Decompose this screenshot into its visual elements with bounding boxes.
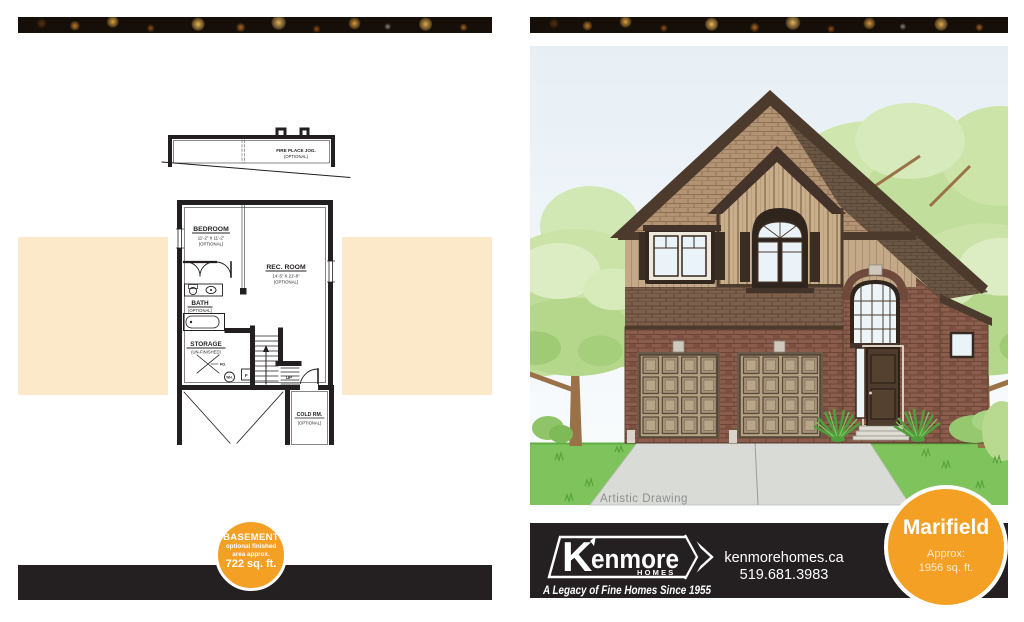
basement-badge-value: 722 sq. ft. xyxy=(218,558,284,571)
bedroom-label: BEDROOM xyxy=(193,226,229,233)
cold-room-label: COLD RM. xyxy=(297,412,323,418)
bath-label: BATH xyxy=(191,300,209,307)
storage-sub: (UN-FINISHED) xyxy=(191,350,221,355)
peach-panel-right xyxy=(342,237,492,395)
storage-label: STORAGE xyxy=(190,341,222,348)
window-right xyxy=(327,261,335,282)
furnace-label: F xyxy=(245,373,248,378)
bedroom-dims: 11'-2" X 11'-2" xyxy=(198,236,225,241)
garage-door-left xyxy=(637,352,720,438)
room-cold: COLD RM. (OPTIONAL) xyxy=(288,384,332,445)
entry xyxy=(846,265,909,440)
rec-room-label: REC. ROOM xyxy=(266,264,306,271)
fireplace-optional: (OPTIONAL) xyxy=(284,154,309,159)
bedroom-optional: (OPTIONAL) xyxy=(199,242,224,247)
wing-window xyxy=(951,333,973,357)
phone-number: 519.681.3983 xyxy=(709,567,859,584)
logo-brand-sub: HOMES xyxy=(637,568,676,577)
window-left xyxy=(176,229,184,248)
logo-brand-k: K xyxy=(562,534,592,580)
basement-badge: BASEMENT optional finished area approx. … xyxy=(215,519,287,591)
basement-badge-line1: optional finished xyxy=(218,543,284,551)
marifield-badge: Marifield Approx: 1956 sq. ft. xyxy=(884,485,1008,609)
basement-floor-plan: FIRE PLACE JOG. (OPTIONAL) xyxy=(150,100,362,445)
logo-tagline: A Legacy of Fine Homes Since 1955 xyxy=(542,583,711,597)
peach-panel-left xyxy=(18,237,168,395)
kenmore-logo: K enmore HOMES A Legacy of Fine Homes Si… xyxy=(540,534,715,606)
basement-badge-title: BASEMENT xyxy=(218,533,284,543)
contact-block: kenmorehomes.ca 519.681.3983 xyxy=(709,550,859,584)
rec-room-optional: (OPTIONAL) xyxy=(274,280,299,285)
fireplace-label: FIRE PLACE JOG. xyxy=(276,148,316,153)
model-approx: Approx: xyxy=(888,547,1004,561)
window-upper-left xyxy=(639,225,725,282)
fireplace-jog-detail: FIRE PLACE JOG. (OPTIONAL) xyxy=(162,129,350,178)
model-name: Marifield xyxy=(888,517,1004,539)
main-plan: BEDROOM 11'-2" X 11'-2" (OPTIONAL) REC. … xyxy=(176,203,335,392)
artistic-drawing-caption: Artistic Drawing xyxy=(600,493,688,505)
bath-optional: (OPTIONAL) xyxy=(188,308,213,313)
rec-room-dims: 14'-5" X 21'-8" xyxy=(272,274,300,279)
stairs-up-label: UP xyxy=(286,375,292,380)
garage-door-right xyxy=(737,352,823,438)
bokeh-header-strip xyxy=(18,17,492,33)
brochure: { "colors": { "orange": "#F4A025", "peac… xyxy=(0,0,1024,622)
house-illustration: Artistic Drawing xyxy=(530,46,1008,512)
floor-drain-label: FD. xyxy=(220,362,226,367)
water-heater-label: WH. xyxy=(226,376,232,380)
model-sqft: 1956 sq. ft. xyxy=(888,561,1004,575)
page-elevation: Artistic Drawing K enmore HOMES A Legacy… xyxy=(530,10,1008,602)
website: kenmorehomes.ca xyxy=(709,550,859,567)
basement-badge-line2: area approx. xyxy=(218,551,284,559)
cold-room-optional: (OPTIONAL) xyxy=(298,421,322,426)
room-storage: STORAGE (UN-FINISHED) xyxy=(187,341,225,355)
unexcavated-area: UN-EXCAVATED xyxy=(180,388,288,446)
page-floorplan: FIRE PLACE JOG. (OPTIONAL) xyxy=(18,10,492,602)
bokeh-header-strip xyxy=(530,17,1008,33)
